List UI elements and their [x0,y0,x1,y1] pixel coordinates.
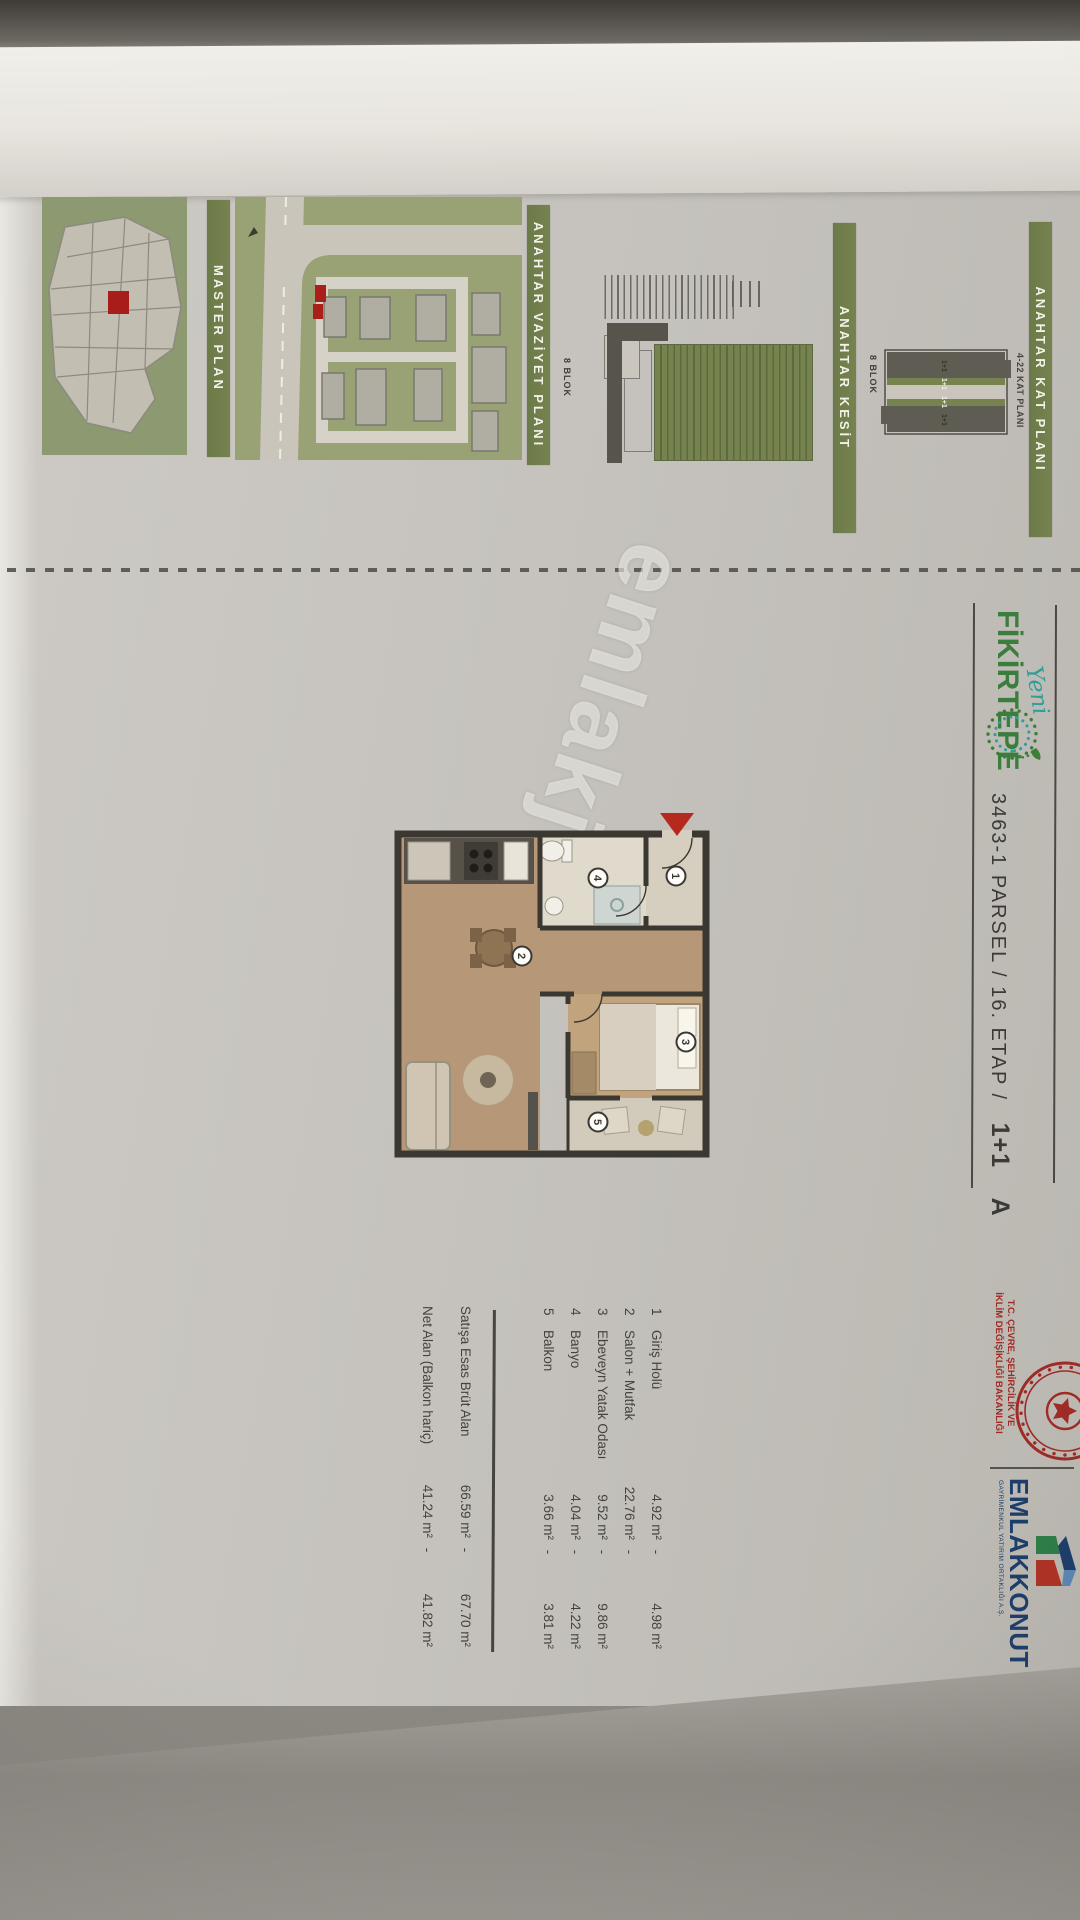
area-totals: Satışa Esas Brüt Alan 66.59 m² - 67.70 m… [412,1306,480,1647]
row-no: 1 [643,1308,670,1330]
kesit-block-label: 8 BLOK [562,358,572,397]
row-area2 [616,1564,643,1649]
developer-emblem-icon [1034,1534,1078,1588]
row-name: Giriş Holü [643,1330,670,1460]
row-area2: 4.22 m² [562,1564,589,1649]
row-name: Balkon [535,1330,562,1460]
section-ground-slab [607,323,622,463]
master-plan-diagram [42,197,187,455]
apartment-floorplan: 1 2 3 4 5 [384,810,714,1164]
dashed-divider [0,568,1080,572]
developer-subtitle: GAYRİMENKUL YATIRIM ORTAKLIĞI A.Ş. [997,1480,1004,1617]
row-area1: 22.76 m² [616,1460,643,1540]
rotated-document-wrapper: ANAHTAR KAT PLANI 4-22 KAT PLANI 1+1 1+1… [0,110,1080,1920]
row-name: Banyo [562,1330,589,1460]
parcel-etap-text: 3463-1 PARSEL / 16. ETAP / [987,793,1009,1101]
row-area2: 3.81 m² [535,1564,562,1649]
row-no: 5 [535,1308,562,1330]
total-label: Net Alan (Balkon hariç) [412,1306,442,1458]
row-area1: 4.92 m² [643,1460,670,1540]
site-plan-diagram [235,197,522,460]
row-dash: - [535,1540,562,1564]
sheet-title: 3463-1 PARSEL / 16. ETAP / 1+1 A [985,793,1014,1217]
unit-label: 1+1 [940,378,947,390]
anahtar-kesit-label: ANAHTAR KESİT [833,223,856,533]
total-dash: - [450,1538,480,1562]
kat-plani-caption: 4-22 KAT PLANI [1015,353,1025,428]
total-dash: - [412,1538,442,1562]
row-dash: - [616,1540,643,1564]
row-no: 3 [589,1308,616,1330]
schedule-row: 4 Banyo 4.04 m² - 4.22 m² [562,1308,589,1649]
anahtar-kat-plani-label: ANAHTAR KAT PLANI [1029,222,1052,537]
schedule-row: 1 Giriş Holü 4.92 m² - 4.98 m² [643,1308,670,1649]
row-no: 4 [562,1308,589,1330]
total-area2: 41.82 m² [412,1562,442,1647]
section-floor-ticks-top [732,281,760,307]
total-area2: 67.70 m² [450,1562,480,1647]
unit-label: 1+1 [940,360,947,372]
title-rule-top [1053,605,1057,1183]
master-plan-label: MASTER PLAN [207,200,230,457]
schedule-row: 5 Balkon 3.66 m² - 3.81 m² [535,1308,562,1649]
row-area1: 3.66 m² [535,1460,562,1540]
unit-label: 1+1 [940,396,947,408]
row-dash: - [562,1540,589,1564]
room-number: 2 [515,953,527,959]
kat-plani-block-label: 8 BLOK [868,355,878,394]
variant-text: A [986,1198,1014,1217]
brand-emblem-icon [980,702,1046,766]
photographed-floorplan-page: ANAHTAR KAT PLANI 4-22 KAT PLANI 1+1 1+1… [0,0,1080,1920]
building-section-diagram [603,275,818,470]
total-area1: 41.24 m² [412,1458,442,1538]
title-rule-bottom [971,603,975,1188]
row-dash: - [589,1540,616,1564]
anahtar-vaziyet-plani-label: ANAHTAR VAZİYET PLANI [527,205,550,465]
total-row: Satışa Esas Brüt Alan 66.59 m² - 67.70 m… [450,1306,480,1647]
row-dash: - [643,1540,670,1564]
logo-divider [990,1467,1074,1469]
room-schedule: 1 Giriş Holü 4.92 m² - 4.98 m² 2 Salon +… [535,1308,670,1649]
total-area1: 66.59 m² [450,1458,480,1538]
unit-label: 1+1 [940,414,947,426]
section-floor-ticks [600,275,734,319]
ministry-line2: İKLİM DEĞİŞİKLİĞİ BAKANLIĞI [992,1288,1004,1438]
row-no: 2 [616,1308,643,1330]
row-area2: 9.86 m² [589,1564,616,1649]
ministry-seal-icon [1012,1358,1080,1464]
room-number: 4 [591,875,603,882]
schedule-row: 2 Salon + Mutfak 22.76 m² - [616,1308,643,1649]
developer-name: EMLAKKONUT [1003,1478,1034,1668]
section-tower [655,345,812,460]
room-number: 3 [679,1039,691,1045]
row-area1: 9.52 m² [589,1460,616,1540]
ministry-name: T.C. ÇEVRE, ŞEHİRCİLİK VE İKLİM DEĞİŞİKL… [992,1288,1016,1438]
ministry-line1: T.C. ÇEVRE, ŞEHİRCİLİK VE [1004,1288,1016,1438]
row-area2: 4.98 m² [643,1564,670,1649]
room-number: 1 [669,873,681,879]
total-label: Satışa Esas Brüt Alan [450,1306,480,1458]
schedule-row: 3 Ebeveyn Yatak Odası 9.52 m² - 9.86 m² [589,1308,616,1649]
row-name: Ebeveyn Yatak Odası [589,1330,616,1460]
key-floorplan-diagram: 1+1 1+1 1+1 1+1 [880,348,1012,436]
schedule-separator [491,1310,496,1652]
row-area1: 4.04 m² [562,1460,589,1540]
total-row: Net Alan (Balkon hariç) 41.24 m² - 41.82… [412,1306,442,1647]
unit-type-text: 1+1 [986,1123,1014,1168]
document-content: ANAHTAR KAT PLANI 4-22 KAT PLANI 1+1 1+1… [0,110,1080,1920]
row-name: Salon + Mutfak [616,1330,643,1460]
room-number: 5 [591,1119,603,1125]
